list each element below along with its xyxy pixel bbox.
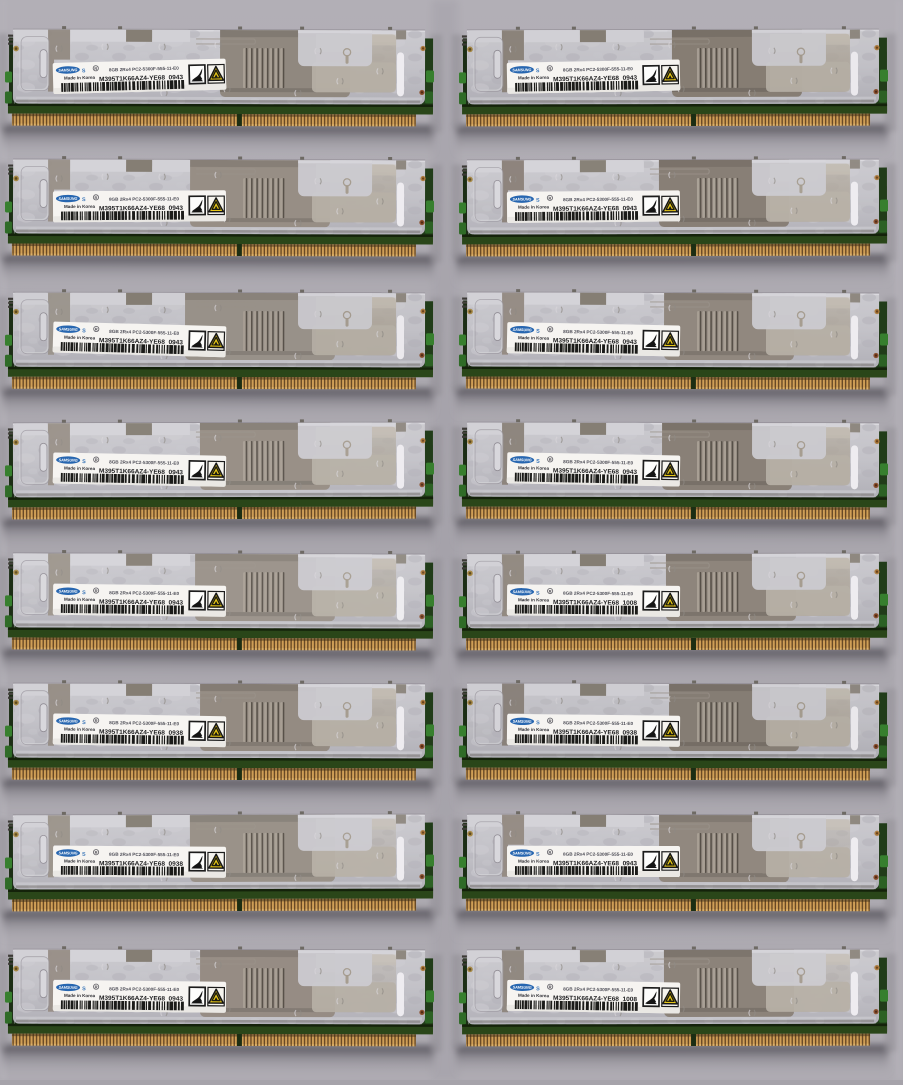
svg-text:Made in Korea: Made in Korea bbox=[64, 75, 96, 81]
svg-text:SAMSUNG: SAMSUNG bbox=[59, 986, 78, 990]
svg-text:R: R bbox=[94, 66, 97, 71]
svg-text:S: S bbox=[536, 329, 540, 335]
svg-text:Made in Korea: Made in Korea bbox=[518, 204, 550, 209]
svg-text:SAMSUNG: SAMSUNG bbox=[59, 327, 78, 332]
svg-text:SAMSUNG: SAMSUNG bbox=[513, 328, 532, 332]
svg-text:R: R bbox=[95, 457, 98, 462]
svg-text:8GB 2Rx4 PC2-5300F-555-11-E0: 8GB 2Rx4 PC2-5300F-555-11-E0 bbox=[563, 591, 634, 597]
svg-text:8GB 2Rx4 PC2-5300F-555-11-E0: 8GB 2Rx4 PC2-5300F-555-11-E0 bbox=[109, 590, 180, 596]
svg-text:R: R bbox=[94, 195, 97, 200]
svg-text:SAMSUNG: SAMSUNG bbox=[513, 986, 532, 990]
svg-text:Made in Korea: Made in Korea bbox=[64, 726, 96, 731]
svg-text:SAMSUNG: SAMSUNG bbox=[58, 68, 77, 72]
svg-text:Made in Korea: Made in Korea bbox=[64, 597, 96, 602]
svg-text:SAMSUNG: SAMSUNG bbox=[513, 458, 532, 462]
svg-text:SAMSUNG: SAMSUNG bbox=[59, 719, 78, 723]
svg-text:Made in Korea: Made in Korea bbox=[518, 727, 550, 732]
svg-text:8GB 2Rx4 PC2-5300F-555-11-E0: 8GB 2Rx4 PC2-5300F-555-11-E0 bbox=[109, 986, 180, 992]
svg-text:8GB 2Rx4 PC2-5300F-555-11-E0: 8GB 2Rx4 PC2-5300F-555-11-E0 bbox=[563, 720, 634, 726]
svg-text:S: S bbox=[536, 68, 540, 74]
svg-text:R: R bbox=[548, 196, 551, 201]
svg-text:R: R bbox=[95, 984, 98, 989]
svg-text:R: R bbox=[549, 850, 552, 855]
svg-text:S: S bbox=[82, 986, 86, 992]
svg-text:SAMSUNG: SAMSUNG bbox=[58, 197, 77, 201]
svg-text:S: S bbox=[536, 986, 540, 992]
svg-text:8GB 2Rx4 PC2-5300F-555-11-E0: 8GB 2Rx4 PC2-5300F-555-11-E0 bbox=[109, 852, 180, 857]
svg-text:R: R bbox=[549, 327, 552, 332]
svg-text:8GB 2Rx4 PC2-5300F-555-11-E0: 8GB 2Rx4 PC2-5300F-555-11-E0 bbox=[563, 852, 634, 857]
svg-text:SAMSUNG: SAMSUNG bbox=[59, 590, 78, 594]
svg-text:SAMSUNG: SAMSUNG bbox=[512, 68, 531, 72]
svg-text:R: R bbox=[549, 984, 552, 989]
svg-text:Made in Korea: Made in Korea bbox=[64, 858, 96, 863]
svg-text:Made in Korea: Made in Korea bbox=[518, 335, 550, 341]
svg-text:R: R bbox=[95, 327, 98, 332]
svg-text:S: S bbox=[536, 198, 540, 204]
svg-text:R: R bbox=[549, 589, 552, 594]
svg-text:8GB 2Rx4 PC2-5300F-555-11-E0: 8GB 2Rx4 PC2-5300F-555-11-E0 bbox=[563, 197, 634, 203]
svg-text:S: S bbox=[536, 720, 540, 726]
svg-text:S: S bbox=[536, 852, 540, 858]
svg-text:Made in Korea: Made in Korea bbox=[64, 204, 96, 209]
svg-text:Made in Korea: Made in Korea bbox=[64, 465, 96, 471]
svg-text:Made in Korea: Made in Korea bbox=[518, 465, 550, 471]
svg-text:S: S bbox=[82, 720, 86, 726]
svg-text:Made in Korea: Made in Korea bbox=[64, 993, 96, 998]
svg-text:SAMSUNG: SAMSUNG bbox=[59, 458, 78, 462]
svg-text:R: R bbox=[548, 66, 551, 71]
svg-text:S: S bbox=[536, 591, 540, 597]
svg-text:S: S bbox=[82, 459, 86, 465]
svg-text:Made in Korea: Made in Korea bbox=[518, 859, 550, 864]
svg-text:S: S bbox=[82, 590, 86, 596]
svg-text:R: R bbox=[95, 718, 98, 723]
svg-text:Made in Korea: Made in Korea bbox=[518, 993, 550, 998]
svg-text:SAMSUNG: SAMSUNG bbox=[513, 590, 532, 594]
svg-text:S: S bbox=[82, 197, 86, 203]
svg-text:SAMSUNG: SAMSUNG bbox=[59, 851, 78, 855]
svg-text:S: S bbox=[82, 328, 86, 334]
svg-text:R: R bbox=[549, 457, 552, 462]
svg-text:Made in Korea: Made in Korea bbox=[518, 75, 550, 81]
svg-text:8GB 2Rx4 PC2-5300F-555-11-E0: 8GB 2Rx4 PC2-5300F-555-11-E0 bbox=[109, 196, 180, 201]
svg-text:Made in Korea: Made in Korea bbox=[518, 597, 550, 602]
svg-text:R: R bbox=[95, 850, 98, 855]
svg-text:R: R bbox=[549, 718, 552, 723]
svg-text:SAMSUNG: SAMSUNG bbox=[513, 720, 532, 724]
svg-text:S: S bbox=[82, 68, 86, 74]
svg-text:S: S bbox=[536, 459, 540, 465]
svg-text:SAMSUNG: SAMSUNG bbox=[512, 197, 531, 201]
svg-text:Made in Korea: Made in Korea bbox=[64, 335, 96, 341]
svg-text:R: R bbox=[95, 588, 98, 593]
svg-text:SAMSUNG: SAMSUNG bbox=[513, 851, 532, 855]
svg-text:S: S bbox=[82, 852, 86, 858]
